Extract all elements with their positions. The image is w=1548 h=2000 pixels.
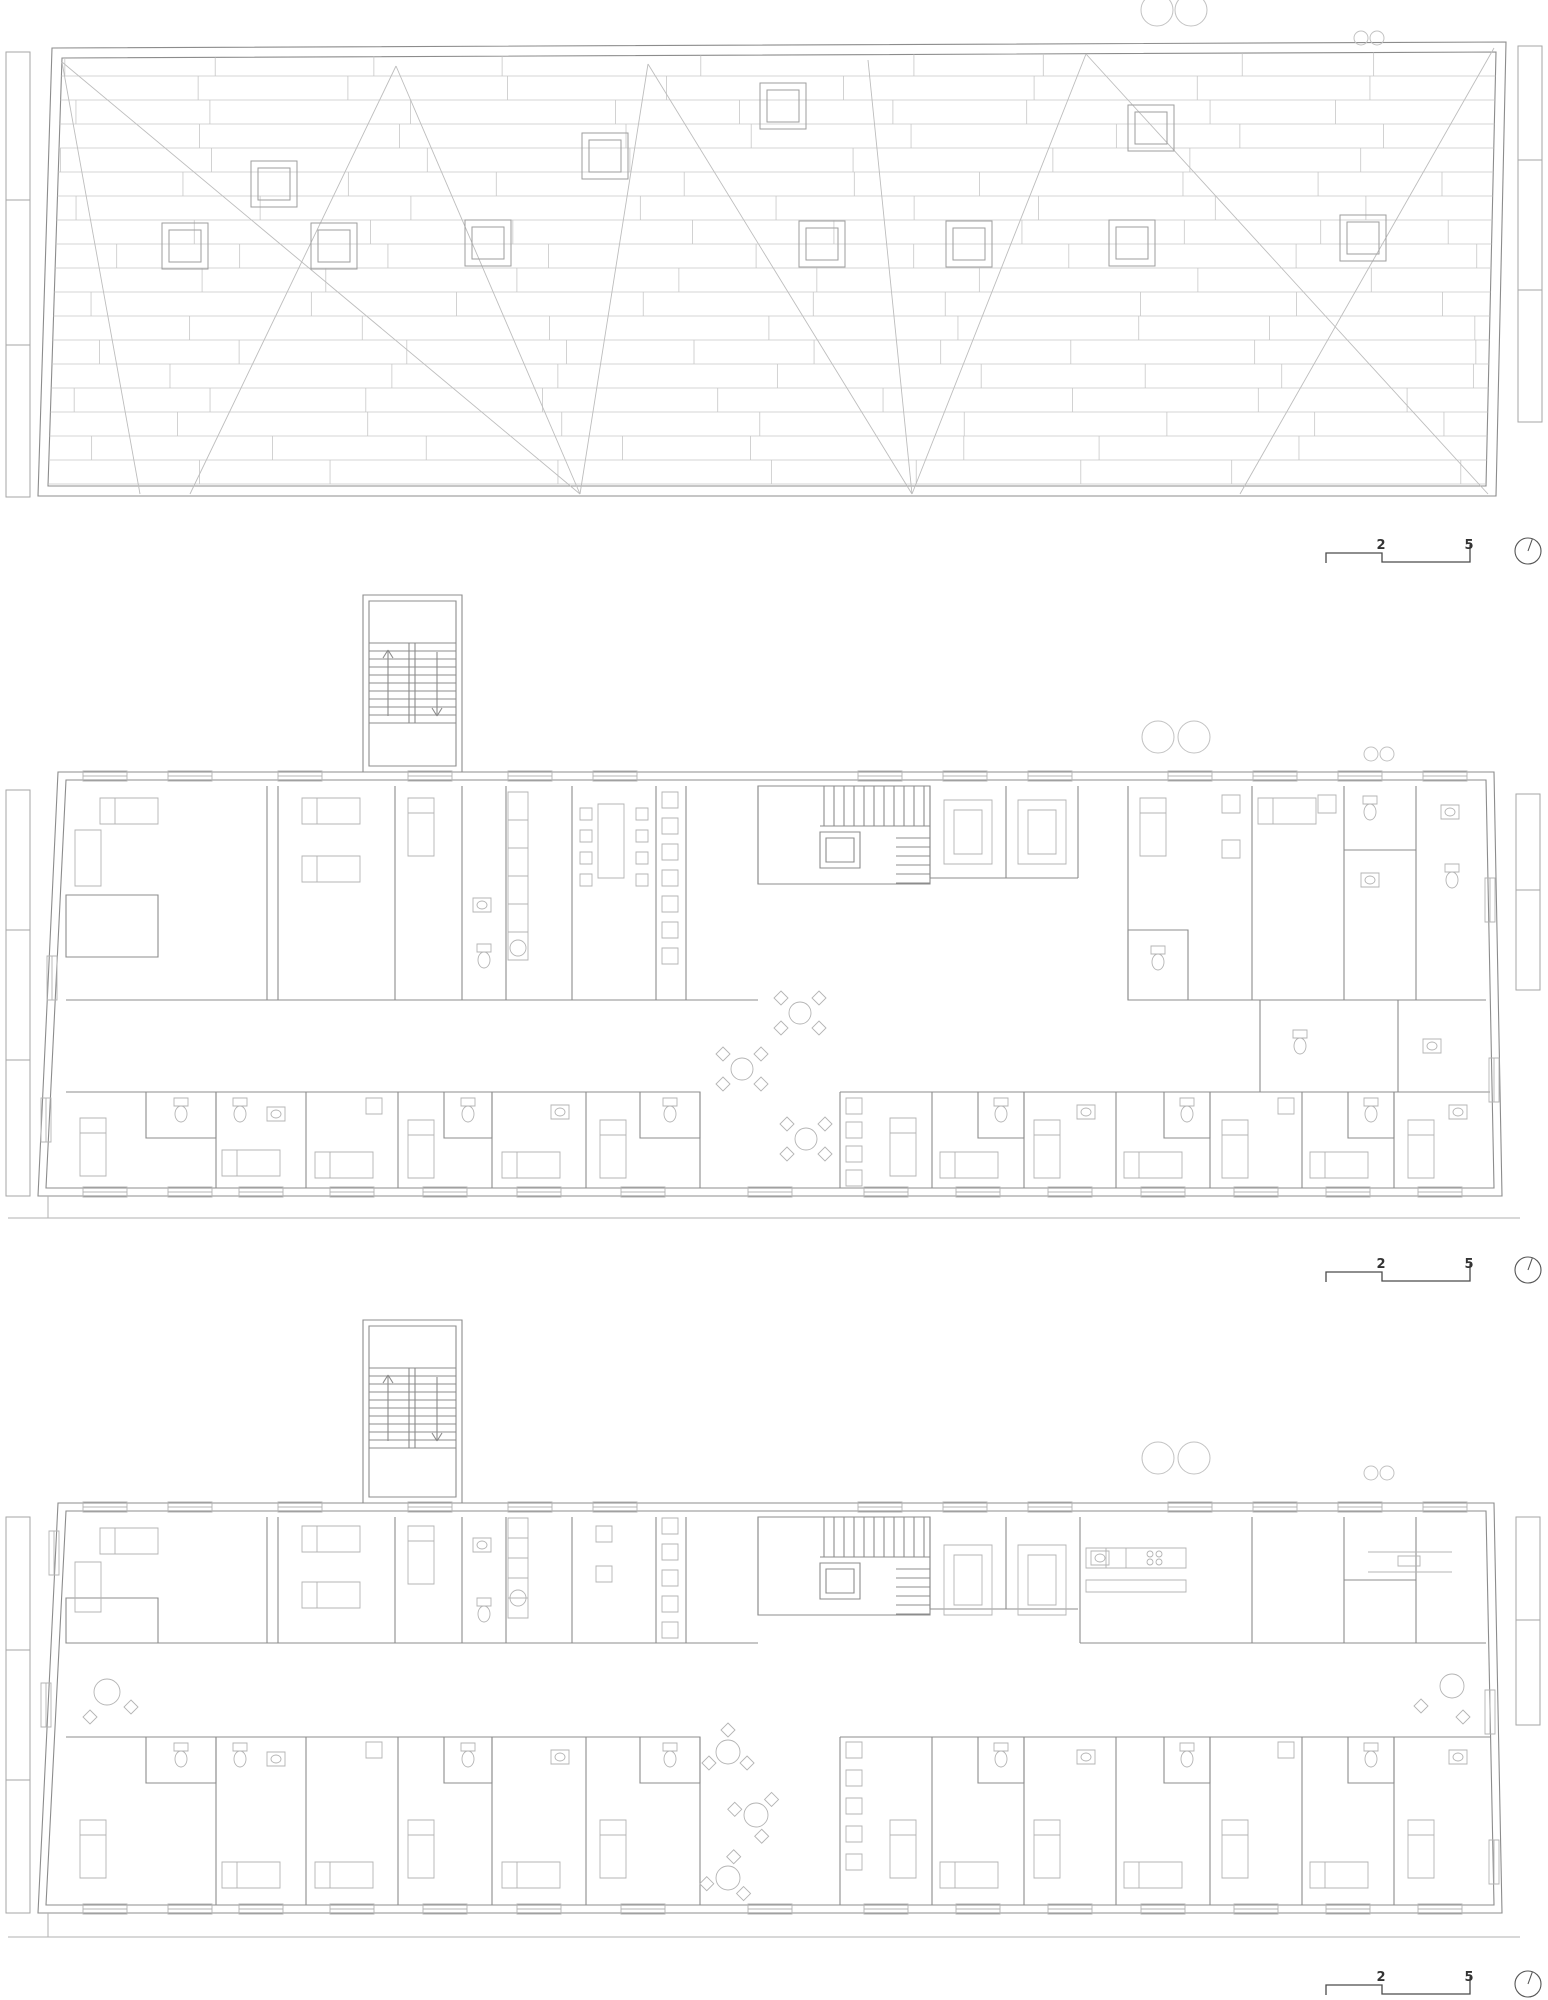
scale-number: 5 xyxy=(1464,538,1473,553)
upper-floor-plan-side-strips xyxy=(6,790,1540,1196)
drawing-sheet: 252525 xyxy=(0,0,1548,2000)
scale-number: 5 xyxy=(1464,1257,1473,1272)
trees-roof xyxy=(1141,0,1384,45)
upper-floor-plan-site-line xyxy=(8,1196,1520,1218)
roof-valley-lines xyxy=(62,48,1494,494)
ground-floor-plan-furniture xyxy=(41,1502,1499,1914)
scale-bar-1: 25 xyxy=(1326,538,1474,563)
plans-svg: 252525 xyxy=(0,0,1548,2000)
north-arrow-icon-1 xyxy=(1515,538,1541,564)
scale-number: 2 xyxy=(1376,1970,1385,1985)
ground-floor-plan-walls xyxy=(38,1320,1502,1913)
roof-plan-outline xyxy=(38,42,1506,496)
roof-tile-pattern xyxy=(48,52,1496,484)
roof-skylights xyxy=(162,83,1386,269)
north-arrow-icon-3 xyxy=(1515,1971,1541,1997)
scale-number: 2 xyxy=(1376,538,1385,553)
scale-number: 5 xyxy=(1464,1970,1473,1985)
trees-upper-floor-plan xyxy=(1142,721,1394,761)
north-arrow-icon-2 xyxy=(1515,1257,1541,1283)
upper-floor-plan-furniture xyxy=(41,771,1499,1197)
scale-bar-3: 25 xyxy=(1326,1970,1474,1995)
roof-side-strips xyxy=(6,46,1542,497)
trees-ground-floor-plan xyxy=(1142,1442,1394,1480)
scale-bar-2: 25 xyxy=(1326,1257,1474,1282)
scale-number: 2 xyxy=(1376,1257,1385,1272)
upper-floor-plan-walls xyxy=(38,595,1502,1196)
ground-floor-plan-side-strips xyxy=(6,1517,1540,1913)
ground-floor-plan-site-line xyxy=(8,1913,1520,1937)
